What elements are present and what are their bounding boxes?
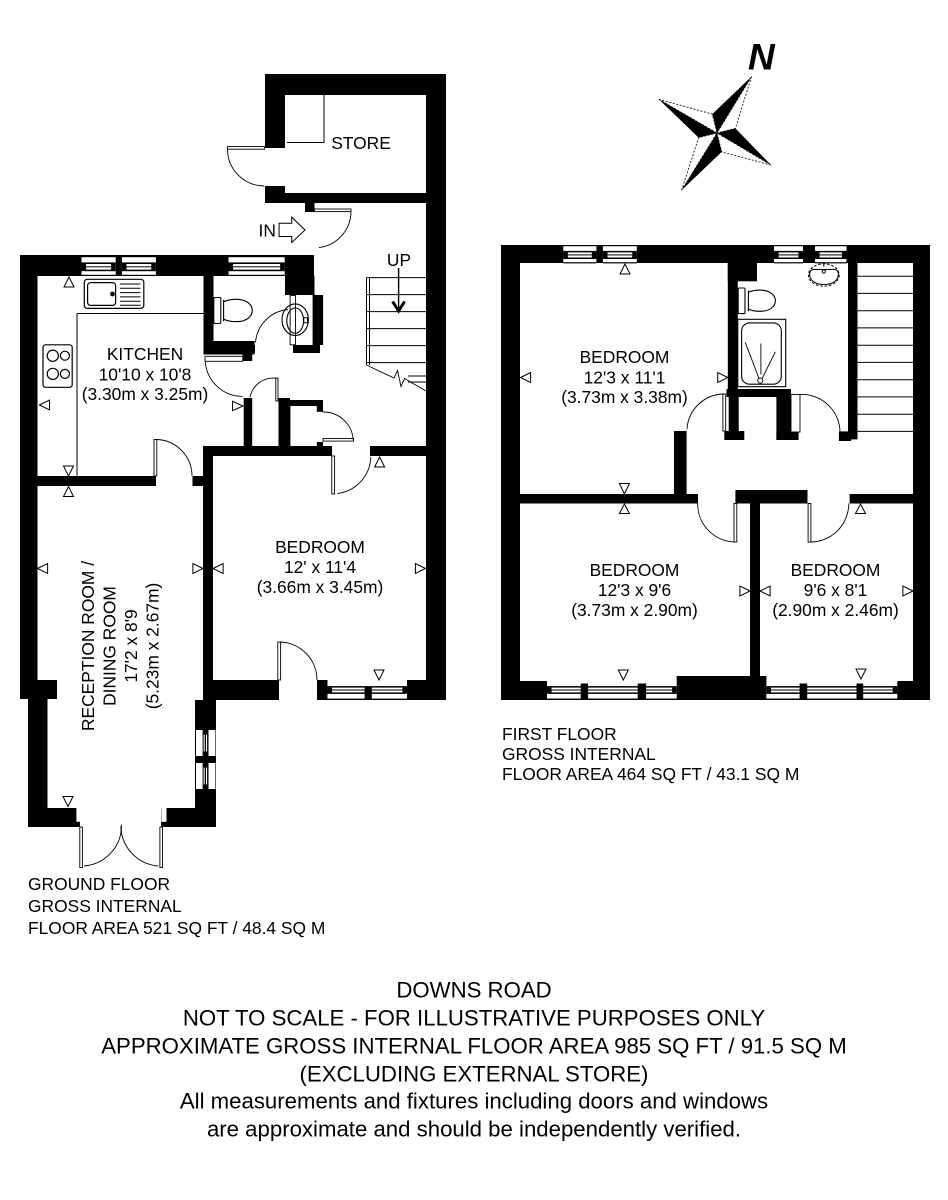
svg-text:GROSS INTERNAL: GROSS INTERNAL: [502, 744, 656, 764]
svg-text:GROSS INTERNAL: GROSS INTERNAL: [28, 896, 182, 916]
svg-text:are approximate and should be: are approximate and should be independen…: [207, 1116, 741, 1141]
svg-text:17'2 x 8'9: 17'2 x 8'9: [121, 609, 141, 682]
svg-text:RECEPTION ROOM /: RECEPTION ROOM /: [78, 561, 98, 731]
svg-text:FLOOR AREA 521 SQ FT / 48.4 SQ: FLOOR AREA 521 SQ FT / 48.4 SQ M: [28, 918, 325, 938]
svg-text:BEDROOM: BEDROOM: [590, 560, 680, 580]
svg-text:UP: UP: [387, 250, 411, 270]
svg-text:10'10 x 10'8: 10'10 x 10'8: [99, 364, 192, 384]
svg-text:DOWNS ROAD: DOWNS ROAD: [396, 977, 551, 1002]
svg-text:NOT TO SCALE - FOR ILLUSTRATIV: NOT TO SCALE - FOR ILLUSTRATIVE PURPOSES…: [183, 1005, 766, 1030]
svg-text:(3.30m x 3.25m): (3.30m x 3.25m): [82, 384, 209, 404]
svg-text:All measurements and fixtures: All measurements and fixtures including …: [180, 1088, 768, 1113]
svg-text:BEDROOM: BEDROOM: [580, 347, 670, 367]
svg-text:DINING ROOM: DINING ROOM: [100, 586, 120, 706]
svg-text:FIRST FLOOR: FIRST FLOOR: [502, 724, 617, 744]
svg-text:STORE: STORE: [331, 133, 391, 153]
svg-text:BEDROOM: BEDROOM: [791, 560, 881, 580]
svg-text:12'3 x 9'6: 12'3 x 9'6: [598, 580, 671, 600]
svg-text:(5.23m x 2.67m): (5.23m x 2.67m): [143, 583, 163, 710]
svg-text:(3.73m x 3.38m): (3.73m x 3.38m): [561, 387, 688, 407]
svg-text:IN: IN: [259, 221, 276, 241]
svg-text:12' x 11'4: 12' x 11'4: [284, 557, 356, 577]
svg-text:KITCHEN: KITCHEN: [107, 344, 183, 364]
svg-text:(3.73m x 2.90m): (3.73m x 2.90m): [571, 600, 698, 620]
svg-text:APPROXIMATE GROSS INTERNAL FLO: APPROXIMATE GROSS INTERNAL FLOOR AREA 98…: [101, 1033, 847, 1058]
svg-text:(3.66m x 3.45m): (3.66m x 3.45m): [257, 577, 384, 597]
svg-text:N: N: [748, 37, 776, 78]
svg-text:9'6 x 8'1: 9'6 x 8'1: [804, 580, 868, 600]
svg-text:(EXCLUDING EXTERNAL STORE): (EXCLUDING EXTERNAL STORE): [300, 1061, 649, 1086]
svg-text:GROUND FLOOR: GROUND FLOOR: [28, 874, 170, 894]
svg-text:BEDROOM: BEDROOM: [275, 537, 365, 557]
svg-text:12'3 x 11'1: 12'3 x 11'1: [584, 367, 666, 387]
svg-text:FLOOR AREA 464 SQ FT / 43.1 SQ: FLOOR AREA 464 SQ FT / 43.1 SQ M: [502, 764, 799, 784]
svg-text:(2.90m x 2.46m): (2.90m x 2.46m): [772, 600, 899, 620]
